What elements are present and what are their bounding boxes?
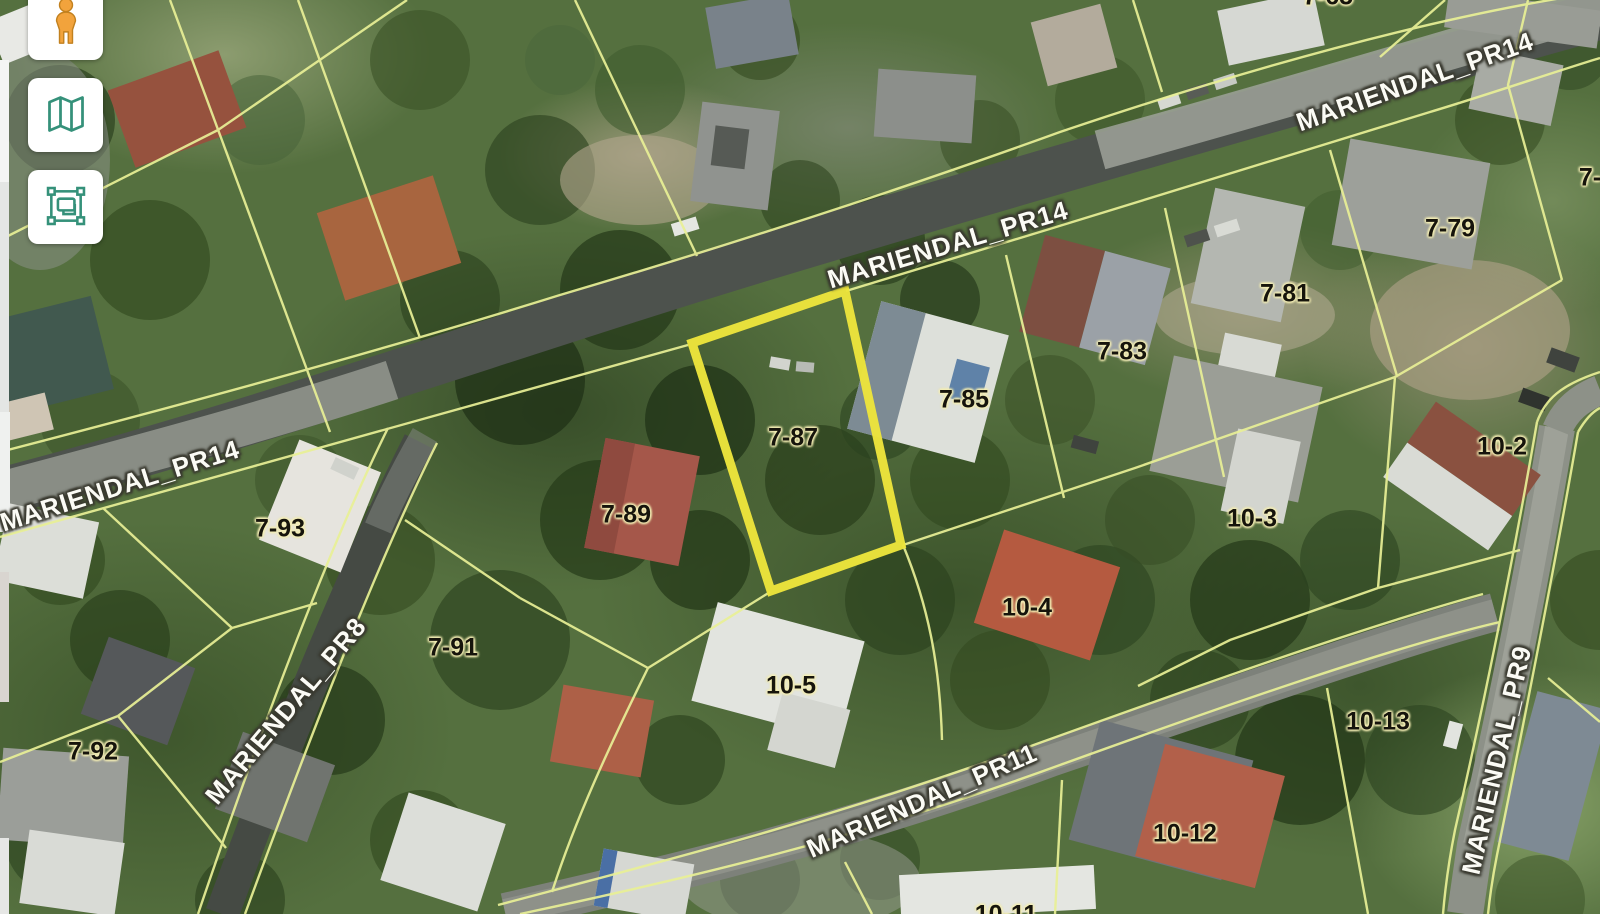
aerial-imagery-canvas xyxy=(0,0,1600,914)
map-toolbar xyxy=(28,0,103,244)
basemap-button[interactable] xyxy=(28,78,103,152)
pegman-button[interactable] xyxy=(28,0,103,60)
pegman-icon xyxy=(49,0,83,49)
select-extent-button[interactable] xyxy=(28,170,103,244)
map-viewport[interactable]: 7-937-917-927-897-877-857-837-817-797-65… xyxy=(0,0,1600,914)
select-extent-icon xyxy=(44,184,88,231)
map-icon xyxy=(44,92,88,139)
